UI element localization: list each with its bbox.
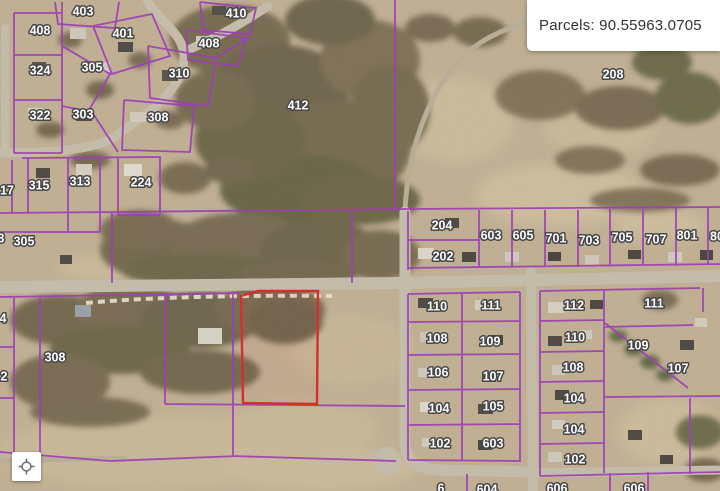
parcel-label: 408: [30, 24, 51, 38]
parcel-label: 408: [199, 37, 220, 51]
selected-parcel-outline[interactable]: [241, 291, 318, 404]
parcel-label: 310: [169, 67, 190, 81]
parcel-label: 109: [628, 339, 649, 353]
parcel-label: 111: [481, 299, 501, 313]
parcel-label: 305: [14, 235, 35, 249]
parcel-label: 322: [30, 109, 51, 123]
parcel-label: 108: [563, 361, 584, 375]
parcel-label: 107: [483, 370, 504, 384]
parcel-label: 224: [131, 176, 152, 190]
crosshair-locate-icon: [18, 458, 35, 475]
parcel-label: 324: [30, 64, 51, 78]
parcel-label: 412: [288, 99, 309, 113]
parcel-label: 204: [432, 219, 453, 233]
parcel-label: 2: [1, 370, 8, 384]
parcel-label: 102: [430, 437, 451, 451]
parcel-label: 110: [565, 331, 585, 345]
parcel-label: 703: [579, 234, 600, 248]
parcel-label: 603: [483, 437, 504, 451]
parcel-label: 6: [438, 482, 445, 491]
parcel-label: 801: [677, 229, 698, 243]
parcel-label: 305: [82, 61, 103, 75]
parcel-label: 104: [564, 423, 585, 437]
parcel-label: 107: [668, 362, 689, 376]
parcel-label: 701: [546, 232, 567, 246]
parcel-label: 80: [710, 230, 720, 244]
parcel-label: 112: [564, 299, 584, 313]
parcel-label: 105: [483, 400, 504, 414]
parcel-label: 605: [513, 229, 534, 243]
parcel-label: 111: [644, 297, 664, 311]
parcel-label: 110: [427, 300, 447, 314]
parcel-label: 108: [427, 332, 448, 346]
map-viewport[interactable]: 4034104084014083243053102084123223033081…: [0, 0, 720, 491]
parcel-label: 410: [226, 7, 247, 21]
parcel-label: 707: [646, 233, 667, 247]
parcel-label: 4: [0, 312, 7, 326]
parcel-label: 208: [603, 68, 624, 82]
parcel-label: 315: [29, 179, 50, 193]
parcel-label: 606: [624, 482, 645, 491]
locate-button[interactable]: [12, 452, 41, 481]
parcel-label: 401: [113, 27, 134, 41]
parcel-label: 17: [0, 184, 14, 198]
parcel-label: 705: [612, 231, 633, 245]
parcel-label: 3: [0, 232, 5, 246]
parcel-label: 313: [70, 175, 91, 189]
parcel-label: 104: [429, 402, 450, 416]
parcel-label: 303: [73, 108, 94, 122]
parcel-label: 104: [564, 392, 585, 406]
parcel-label: 604: [477, 483, 498, 491]
parcel-label: 102: [565, 453, 586, 467]
parcel-label: 603: [481, 229, 502, 243]
parcel-label: 202: [433, 250, 454, 264]
aerial-map[interactable]: 4034104084014083243053102084123223033081…: [0, 0, 720, 491]
parcel-label: 403: [73, 5, 94, 19]
parcel-label: 308: [148, 111, 169, 125]
parcel-info-box: Parcels: 90.55963.0705: [527, 0, 720, 51]
parcel-label: 606: [547, 482, 568, 491]
parcel-label: 308: [45, 351, 66, 365]
parcel-info-text: Parcels: 90.55963.0705: [539, 17, 702, 34]
parcel-label: 106: [428, 366, 449, 380]
parcel-label: 109: [480, 335, 501, 349]
